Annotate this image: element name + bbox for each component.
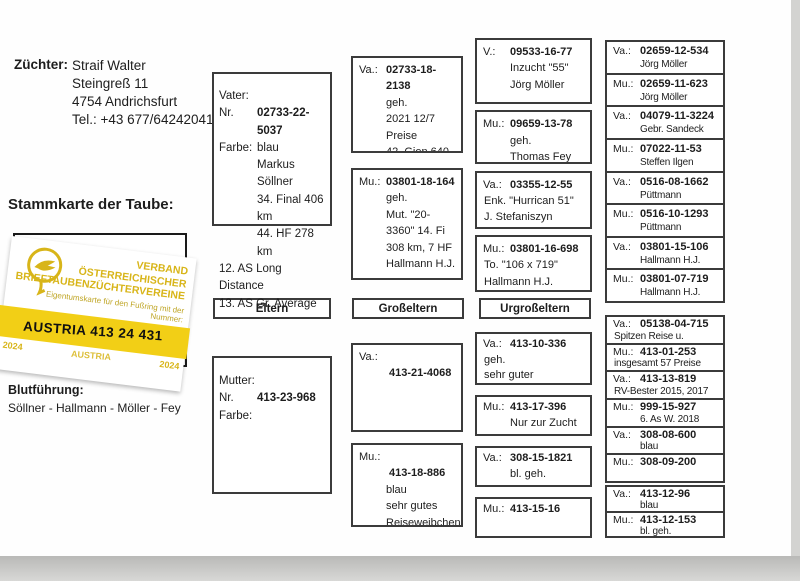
great-grandparents-maternal-column: Va.: 413-10-336 geh. sehr guter Reisevog… (475, 332, 592, 538)
pedigree-cell: Mu.: 03801-16-698 To. "106 x 719" Hallma… (475, 235, 592, 292)
cell-notes: Enk. "Hurrican 51" J. Stefaniszyn (483, 193, 586, 226)
parent-type-label: Mu.: (613, 272, 640, 286)
parent-type-label: Mu.: (613, 207, 640, 221)
bloodline-label: Blutführung: (8, 383, 84, 397)
breeder-label: Züchter: (14, 57, 68, 72)
cell-notes: 6. As W. 2018 (613, 414, 719, 427)
pedigree-heading: Stammkarte der Taube: (8, 196, 174, 213)
pedigree-cell: Mu.: 308-09-200 (607, 455, 723, 481)
ring-number-value: AUSTRIA 413 24 431 (23, 319, 164, 344)
grandparents-maternal-column: Va.: 413-21-4068 Mu.: 413-18-886 blau se… (351, 343, 463, 527)
ring-number: 07022-11-53 (640, 142, 702, 156)
parent-type-label: Va.: (483, 451, 510, 467)
parent-type-label: Va.: (359, 62, 386, 95)
ring-number: 308-15-1821 (510, 451, 572, 467)
parent-type-label: Va.: (613, 44, 640, 58)
parent-type-label: Mu.: (613, 142, 640, 156)
ring-number: 0516-10-1293 (640, 207, 709, 221)
parent-type-label: Mu.: (613, 401, 640, 414)
pedigree-cell: Mu.: 413-01-253 insgesamt 57 Preise (607, 345, 723, 373)
ring-number: 413-15-16 (510, 502, 560, 518)
ring-number: 413-17-396 (510, 400, 566, 416)
grandparents-paternal-column: Va.: 02733-18-2138 geh. 2021 12/7 Preise… (351, 56, 463, 280)
father-color-value: blau (257, 140, 279, 157)
scan-edge-right (791, 0, 800, 581)
cell-notes: blau (613, 500, 719, 512)
mother-ring-number: 413-23-968 (257, 390, 316, 407)
pedigree-cell: Va.: 413-12-96 blau (607, 487, 723, 513)
father-footnotes: 12. AS Long Distance 13. AS Gr. Average (219, 261, 326, 313)
ring-number: 413-10-336 (510, 337, 566, 353)
cell-notes: Inzucht "55" Jörg Möller (483, 60, 586, 93)
mother-title: Mutter: (219, 373, 326, 390)
generation-label-grandparents: Großeltern (352, 298, 464, 319)
parent-type-label: Mu.: (359, 449, 386, 465)
pedigree-cell: Mu.: 07022-11-53 Steffen Ilgen (607, 140, 723, 173)
father-box: Vater: Nr. 02733-22-5037 Farbe: blau Mar… (212, 72, 332, 226)
breeder-address: Straif Walter Steingreß 11 4754 Andrichs… (72, 57, 214, 129)
ring-number: 413-12-153 (640, 514, 696, 526)
pedigree-cell: Mu.: 0516-10-1293 Püttmann (607, 205, 723, 238)
generation-label-great-grandparents: Urgroßeltern (479, 298, 591, 319)
ring-number: 03801-16-698 (510, 241, 579, 257)
parent-type-label: Mu.: (613, 456, 640, 469)
ring-number: 0516-08-1662 (640, 175, 709, 189)
ring-number: 09659-13-78 (510, 116, 572, 132)
ring-number: 02733-18-2138 (386, 62, 457, 95)
cell-notes: Püttmann (613, 221, 719, 235)
parent-type-label: Va.: (613, 109, 640, 123)
father-color-label: Farbe: (219, 140, 257, 157)
cell-notes: Steffen Ilgen (613, 156, 719, 170)
ring-number: 05138-04-715 (640, 318, 709, 331)
parent-type-label: Va.: (613, 175, 640, 189)
parent-type-label: Mu.: (613, 77, 640, 91)
card-year-left: 2024 (2, 340, 23, 352)
great-grandparents-paternal-column: V.: 09533-16-77 Inzucht "55" Jörg Möller… (475, 38, 592, 292)
card-country-watermark: AUSTRIA (71, 349, 112, 362)
ring-number: 03801-07-719 (640, 272, 709, 286)
ring-number: 02659-11-623 (640, 77, 708, 91)
pedigree-cell: Mu.: 413-15-16 (475, 497, 592, 538)
pedigree-cell: Va.: 02659-12-534 Jörg Möller (607, 42, 723, 75)
cell-notes: blau (613, 441, 719, 454)
cell-notes: Püttmann (613, 189, 719, 203)
parent-type-label: Va.: (483, 177, 510, 193)
mother-color-label: Farbe: (219, 408, 257, 425)
pedigree-cell: Va.: 03801-15-106 Hallmann H.J. (607, 238, 723, 271)
pedigree-cell: Va.: 04079-11-3224 Gebr. Sandeck (607, 107, 723, 140)
ring-number: 04079-11-3224 (640, 109, 714, 123)
pedigree-cell: Va.: 413-10-336 geh. sehr guter Reisevog… (475, 332, 592, 385)
card-year-right: 2024 (159, 359, 180, 371)
pedigree-cell: Va.: 05138-04-715 Spitzen Reise u. Zucht… (607, 317, 723, 345)
parent-type-label: Mu.: (359, 174, 386, 190)
cell-notes: Spitzen Reise u. Zuchtvogel (613, 331, 719, 345)
cell-notes: RV-Bester 2015, 2017 (613, 386, 719, 399)
cell-notes: To. "106 x 719" Hallmann H.J. (483, 257, 586, 290)
parent-type-label: Mu.: (613, 346, 640, 359)
parent-type-label: Mu.: (483, 116, 510, 132)
cell-notes: geh. Mut. "20-3360" 14. Fi 308 km, 7 HF … (359, 190, 457, 272)
cell-notes: geh. Thomas Fey (483, 133, 586, 165)
parent-type-label: Va.: (613, 373, 640, 386)
gg-grandparents-maternal-stack-lower: Va.: 413-12-96 blau Mu.: 413-12-153 bl. … (605, 485, 725, 538)
parent-type-label: V.: (483, 44, 510, 60)
cell-notes: bl. geh. (483, 467, 586, 483)
father-details: Markus Söllner 34. Final 406 km 44. HF 2… (219, 157, 326, 261)
ownership-card: VERBAND ÖSTERREICHISCHER BRIEFTAUBENZÜCH… (0, 236, 197, 392)
cell-notes: Hallmann H.J. (613, 254, 719, 268)
scan-edge-bottom (0, 556, 800, 581)
ring-number: 09533-16-77 (510, 44, 572, 60)
ring-number: 413-01-253 (640, 346, 696, 359)
ring-number: 03801-18-164 (386, 174, 455, 190)
ring-number: 999-15-927 (640, 401, 696, 414)
pedigree-cell: Mu.: 413-17-396 Nur zur Zucht (475, 395, 592, 436)
father-ring-number: 02733-22-5037 (257, 105, 326, 140)
ring-number: 03355-12-55 (510, 177, 572, 193)
father-nr-label: Nr. (219, 105, 257, 140)
parent-type-label: Mu.: (483, 241, 510, 257)
pedigree-cell: Mu.: 413-12-153 bl. geh. (607, 513, 723, 537)
pedigree-cell: Va.: 02733-18-2138 geh. 2021 12/7 Preise… (351, 56, 463, 153)
pedigree-cell: Va.: 03355-12-55 Enk. "Hurrican 51" J. S… (475, 171, 592, 229)
parent-type-label: Mu.: (613, 514, 640, 526)
pedigree-cell: Va.: 0516-08-1662 Püttmann (607, 173, 723, 206)
pedigree-cell: Mu.: 02659-11-623 Jörg Möller (607, 75, 723, 108)
mother-box: Mutter: Nr. 413-23-968 Farbe: (212, 356, 332, 494)
pedigree-cell: Va.: 413-13-819 RV-Bester 2015, 2017 (607, 372, 723, 400)
parent-type-label: Va.: (613, 429, 640, 442)
ring-number: 413-21-4068 (359, 365, 457, 381)
cell-notes: Nur zur Zucht (483, 416, 586, 432)
pedigree-cell: Mu.: 09659-13-78 geh. Thomas Fey (475, 110, 592, 164)
ring-number: 413-12-96 (640, 488, 690, 500)
cell-notes: Gebr. Sandeck (613, 123, 719, 137)
pedigree-cell: Va.: 308-15-1821 bl. geh. (475, 446, 592, 487)
cell-notes: geh. sehr guter Reisevogel (483, 353, 586, 386)
parent-type-label: Va.: (613, 318, 640, 331)
parent-type-label: Mu.: (483, 502, 510, 518)
ring-number: 308-09-200 (640, 456, 696, 469)
pedigree-document: Züchter: Straif Walter Steingreß 11 4754… (0, 0, 800, 581)
parent-type-label: Va.: (359, 349, 386, 365)
gg-grandparents-paternal-stack: Va.: 02659-12-534 Jörg Möller Mu.: 02659… (605, 40, 725, 303)
parent-type-label: Va.: (483, 337, 510, 353)
ring-number: 02659-12-534 (640, 44, 709, 58)
pedigree-cell: Mu.: 999-15-927 6. As W. 2018 (607, 400, 723, 428)
parent-type-label: Mu.: (483, 400, 510, 416)
cell-notes: Jörg Möller (613, 58, 719, 72)
cell-notes: insgesamt 57 Preise (613, 358, 719, 371)
ring-number: 03801-15-106 (640, 240, 709, 254)
gg-grandparents-maternal-stack-upper: Va.: 05138-04-715 Spitzen Reise u. Zucht… (605, 315, 725, 483)
cell-notes: Hallmann H.J. (613, 286, 719, 300)
bloodline-value: Söllner - Hallmann - Möller - Fey (8, 401, 181, 415)
cell-notes: bl. geh. (613, 526, 719, 537)
cell-notes: blau sehr gutes Reiseweibchen 2020 10 Pr… (359, 482, 457, 527)
pedigree-cell: Va.: 308-08-600 blau (607, 428, 723, 456)
cell-notes: Jörg Möller (613, 91, 719, 105)
pedigree-cell: Mu.: 03801-07-719 Hallmann H.J. (607, 270, 723, 301)
cell-notes: geh. 2021 12/7 Preise 42. Gien 640 km Ma… (359, 95, 457, 153)
parent-type-label: Va.: (613, 240, 640, 254)
mother-nr-label: Nr. (219, 390, 257, 407)
pedigree-cell: Mu.: 03801-18-164 geh. Mut. "20-3360" 14… (351, 168, 463, 280)
ring-number: 413-13-819 (640, 373, 696, 386)
ring-number: 413-18-886 (359, 465, 457, 481)
ring-number: 308-08-600 (640, 429, 696, 442)
pedigree-cell: Va.: 413-21-4068 (351, 343, 463, 432)
pedigree-cell: Mu.: 413-18-886 blau sehr gutes Reisewei… (351, 443, 463, 527)
father-title: Vater: (219, 88, 326, 105)
pedigree-cell: V.: 09533-16-77 Inzucht "55" Jörg Möller (475, 38, 592, 104)
parent-type-label: Va.: (613, 488, 640, 500)
